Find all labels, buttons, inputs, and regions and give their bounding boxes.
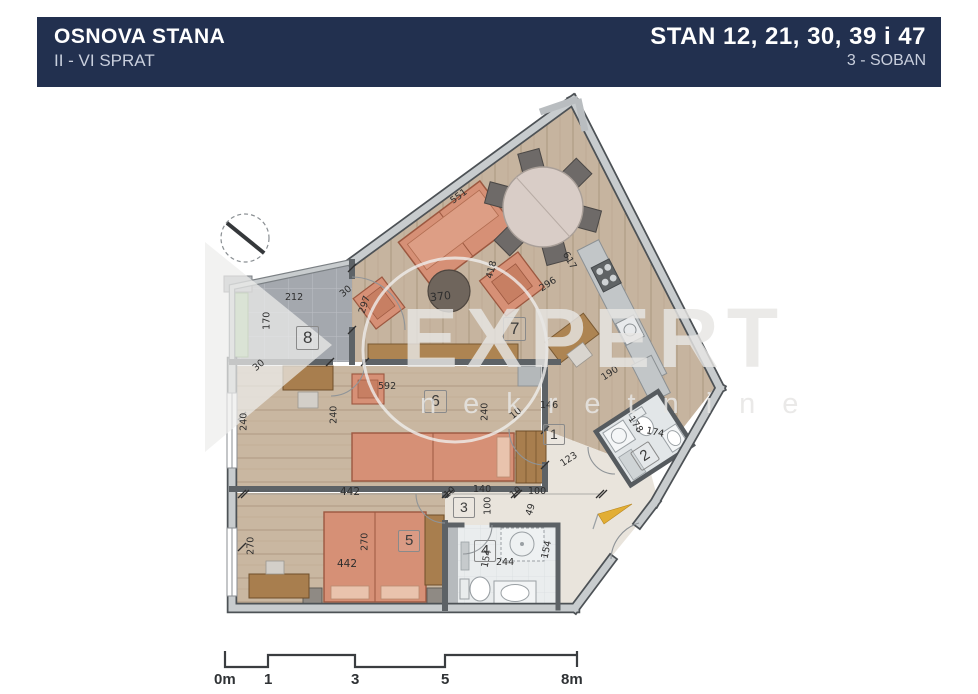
- room-label-5: 5: [398, 530, 420, 552]
- scale-label-5: 5: [441, 671, 449, 688]
- room-label-6: 6: [424, 390, 447, 413]
- dim-room6-width: 592: [378, 382, 396, 392]
- cabinet-room6: [518, 366, 541, 386]
- dim-corridor-depth: 100: [483, 497, 493, 515]
- window-room5: [227, 528, 237, 596]
- dim-bed6-length: 442: [340, 487, 360, 498]
- scale-label-1: 1: [264, 671, 272, 688]
- dim-entry-100: 100: [528, 487, 546, 497]
- nightstand-right: [427, 588, 443, 604]
- dim-terrace-depth: 170: [262, 312, 272, 330]
- dim-room6-depth-left: 240: [239, 413, 249, 431]
- bed-room5: [324, 512, 426, 602]
- sideboard: [368, 344, 518, 361]
- compass-icon: [221, 214, 269, 262]
- room-label-3: 3: [453, 497, 475, 518]
- dim-terrace-width: 212: [285, 293, 303, 303]
- dim-bath4-width: 244: [496, 558, 514, 568]
- room-label-4: 4: [474, 540, 496, 562]
- scale-label-0m: 0m: [214, 671, 236, 688]
- room-label-8: 8: [296, 326, 319, 350]
- desk-room5: [249, 574, 309, 598]
- dim-room6-depth-right: 240: [480, 403, 490, 421]
- wardrobe-room5: [425, 515, 444, 585]
- scale-bar: [225, 651, 577, 667]
- dim-room5-depth-mid: 270: [360, 533, 370, 551]
- dim-living-width: 370: [429, 290, 451, 303]
- dim-hall-width: 146: [540, 401, 558, 411]
- chair-room5: [266, 561, 284, 574]
- dim-room5-depth-left: 270: [246, 537, 256, 555]
- floorplan-page: OSNOVA STANA II - VI SPRAT STAN 12, 21, …: [0, 0, 978, 694]
- chair-room6: [298, 392, 318, 408]
- room-label-1: 1: [543, 424, 565, 445]
- scale-label-3: 3: [351, 671, 359, 688]
- dim-bed5-length: 442: [337, 559, 357, 570]
- floorplan-svg: [0, 0, 978, 694]
- scale-label-8m: 8m: [561, 671, 583, 688]
- dim-room6-depth-mid: 240: [329, 406, 339, 424]
- wardrobe-room6: [516, 431, 546, 483]
- dim-corridor-140: 140: [473, 485, 491, 495]
- room-label-7: 7: [503, 317, 526, 341]
